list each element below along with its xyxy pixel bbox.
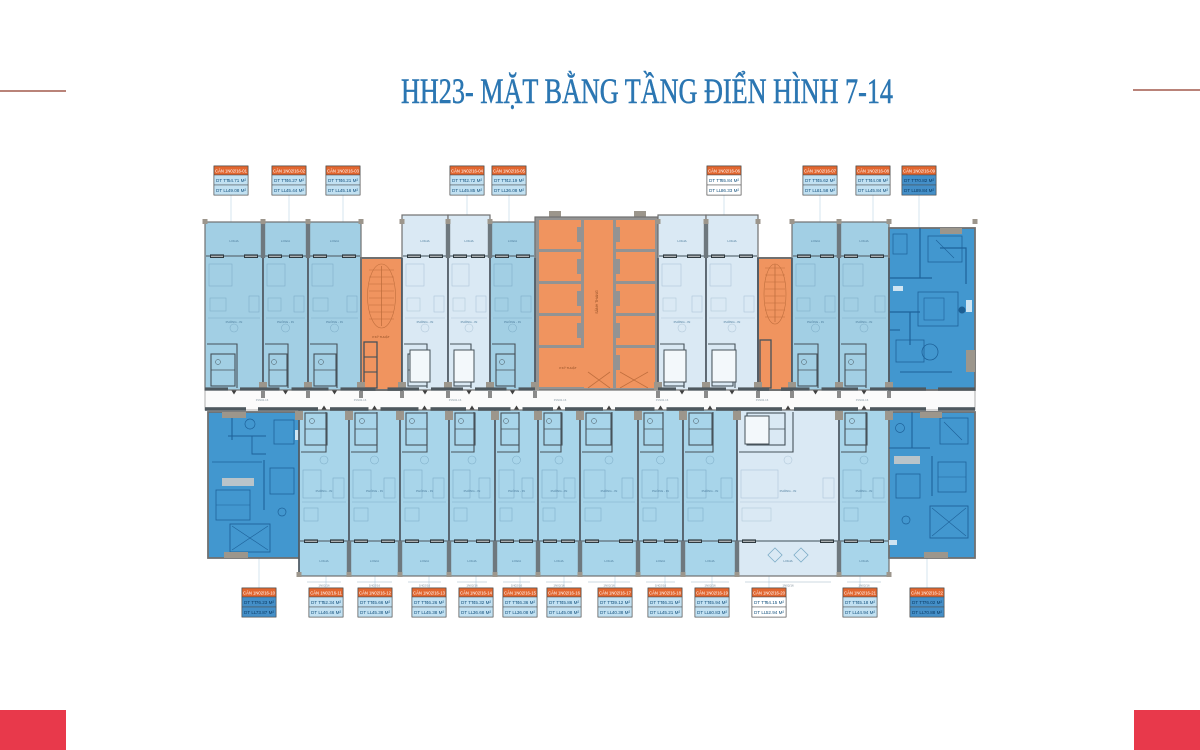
svg-text:45.86 M²: 45.86 M² [561, 600, 580, 605]
svg-text:76.23 M²: 76.23 M² [256, 600, 275, 605]
svg-text:36.08 M²: 36.08 M² [517, 610, 536, 615]
svg-text:45.18 M²: 45.18 M² [857, 600, 876, 605]
svg-text:P1N02-16: P1N02-16 [756, 398, 769, 402]
svg-text:PHÒNG - IN: PHÒNG - IN [366, 488, 383, 493]
svg-text:PHÒNG - IN: PHÒNG - IN [674, 319, 691, 324]
svg-text:1N02/16: 1N02/16 [318, 584, 330, 588]
svg-text:PHÒNG - IN: PHÒNG - IN [551, 488, 568, 493]
svg-text:70.88 M²: 70.88 M² [924, 610, 943, 615]
svg-text:LOGIA: LOGIA [859, 559, 868, 563]
svg-text:CĂN 1N02/16-05: CĂN 1N02/16-05 [493, 169, 526, 174]
svg-text:P.KỸ THUẬT: P.KỸ THUẬT [372, 334, 389, 339]
svg-text:CĂN 1N02/16-01: CĂN 1N02/16-01 [215, 169, 248, 174]
svg-text:P1N02-16: P1N02-16 [554, 398, 567, 402]
svg-text:45.08 M²: 45.08 M² [561, 610, 580, 615]
svg-text:PHÒNG - IN: PHÒNG - IN [417, 319, 434, 324]
svg-text:45.38 M²: 45.38 M² [372, 610, 391, 615]
svg-text:1N02/16: 1N02/16 [553, 584, 565, 588]
svg-text:45.16 M²: 45.16 M² [340, 188, 359, 193]
svg-text:45.38 M²: 45.38 M² [426, 610, 445, 615]
svg-text:CĂN 1N02/16-18: CĂN 1N02/16-18 [649, 591, 682, 596]
svg-text:46.31 M²: 46.31 M² [662, 600, 681, 605]
svg-text:1N02/16: 1N02/16 [369, 584, 381, 588]
svg-text:HH23- MẶT BẰNG TẦNG ĐIỂN HÌNH: HH23- MẶT BẰNG TẦNG ĐIỂN HÌNH 7-14 [401, 71, 893, 111]
svg-text:LOGIA: LOGIA [420, 239, 429, 243]
svg-text:36.68 M²: 36.68 M² [473, 610, 492, 615]
svg-text:44.08 M²: 44.08 M² [870, 178, 889, 183]
svg-text:CĂN 1N02/16-20: CĂN 1N02/16-20 [753, 591, 786, 596]
svg-text:CĂN 1N02/16-10: CĂN 1N02/16-10 [243, 591, 276, 596]
svg-text:PHÒNG - IN: PHÒNG - IN [508, 488, 525, 493]
svg-text:61.58 M²: 61.58 M² [817, 188, 836, 193]
svg-text:PHÒNG - IN: PHÒNG - IN [780, 488, 797, 493]
svg-text:CĂN 1N02/16-22: CĂN 1N02/16-22 [911, 591, 944, 596]
svg-text:PHÒNG - IN: PHÒNG - IN [226, 319, 243, 324]
svg-text:49.08 M²: 49.08 M² [228, 188, 247, 193]
svg-text:LOGIA: LOGIA [508, 239, 517, 243]
svg-text:PHÒNG - IN: PHÒNG - IN [724, 319, 741, 324]
svg-text:CĂN 1N02/16-12: CĂN 1N02/16-12 [359, 591, 392, 596]
svg-text:42.19 M²: 42.19 M² [506, 178, 525, 183]
svg-text:1N02/16: 1N02/16 [782, 584, 794, 588]
svg-text:CĂN 1N02/16-02: CĂN 1N02/16-02 [273, 169, 306, 174]
svg-text:P.KỸ THUẬT: P.KỸ THUẬT [559, 365, 576, 370]
svg-text:45.85 M²: 45.85 M² [464, 188, 483, 193]
svg-text:PHÒNG - IN: PHÒNG - IN [702, 488, 719, 493]
svg-text:CĂN 1N02/16-04: CĂN 1N02/16-04 [451, 169, 484, 174]
svg-text:42.72 M²: 42.72 M² [464, 178, 483, 183]
svg-text:LOGIA: LOGIA [229, 239, 238, 243]
svg-text:CĂN 1N02/16-13: CĂN 1N02/16-13 [413, 591, 446, 596]
svg-text:1N02/16: 1N02/16 [466, 584, 478, 588]
svg-text:LOGIA: LOGIA [656, 559, 665, 563]
svg-text:LOGIA: LOGIA [604, 559, 613, 563]
svg-text:PHÒNG - IN: PHÒNG - IN [416, 488, 433, 493]
svg-text:1N02/16: 1N02/16 [511, 584, 523, 588]
svg-text:CĂN 1N02/16-16: CĂN 1N02/16-16 [548, 591, 581, 596]
svg-text:CĂN 1N02/16-14: CĂN 1N02/16-14 [460, 591, 493, 596]
svg-text:LOGIA: LOGIA [467, 559, 476, 563]
svg-text:CĂN 1N02/16-21: CĂN 1N02/16-21 [844, 591, 877, 596]
svg-text:CĂN 1N02/16-08: CĂN 1N02/16-08 [857, 169, 890, 174]
svg-text:SẢNH THANG: SẢNH THANG [594, 290, 599, 314]
svg-text:70.82 M²: 70.82 M² [916, 178, 935, 183]
svg-text:CĂN 1N02/16-11: CĂN 1N02/16-11 [310, 591, 342, 596]
svg-text:LOGIA: LOGIA [330, 239, 339, 243]
svg-text:P1N02-16: P1N02-16 [354, 398, 367, 402]
svg-text:76.02 M²: 76.02 M² [924, 600, 943, 605]
svg-text:CĂN 1N02/16-06: CĂN 1N02/16-06 [708, 169, 741, 174]
svg-text:89.84 M²: 89.84 M² [916, 188, 935, 193]
svg-text:PHÒNG - IN: PHÒNG - IN [464, 488, 481, 493]
svg-text:1N02/16: 1N02/16 [655, 584, 667, 588]
svg-text:LOGIA: LOGIA [783, 559, 792, 563]
svg-text:40.38 M²: 40.38 M² [612, 610, 631, 615]
svg-text:1N02/16: 1N02/16 [603, 584, 615, 588]
svg-text:PHÒNG - IN: PHÒNG - IN [807, 319, 824, 324]
svg-text:46.46 M²: 46.46 M² [323, 610, 342, 615]
svg-text:46.21 M²: 46.21 M² [340, 178, 359, 183]
svg-text:1N02/16: 1N02/16 [704, 584, 716, 588]
svg-text:36.08 M²: 36.08 M² [506, 188, 525, 193]
svg-text:LOGIA: LOGIA [554, 559, 563, 563]
svg-text:CĂN 1N02/16-09: CĂN 1N02/16-09 [903, 169, 936, 174]
svg-text:LOGIA: LOGIA [420, 559, 429, 563]
svg-text:54.71 M²: 54.71 M² [228, 178, 247, 183]
svg-text:73.87 M²: 73.87 M² [256, 610, 275, 615]
svg-text:CĂN 1N02/16-03: CĂN 1N02/16-03 [327, 169, 360, 174]
svg-text:45.94 M²: 45.94 M² [709, 600, 728, 605]
svg-text:P1N02-16: P1N02-16 [256, 398, 269, 402]
svg-text:45.44 M²: 45.44 M² [286, 188, 305, 193]
svg-text:46.26 M²: 46.26 M² [426, 600, 445, 605]
svg-text:P1N02-16: P1N02-16 [449, 398, 462, 402]
svg-text:PHÒNG - IN: PHÒNG - IN [504, 319, 521, 324]
svg-text:P1N02-16: P1N02-16 [856, 398, 869, 402]
svg-text:LOGIA: LOGIA [811, 239, 820, 243]
svg-text:86.33 M²: 86.33 M² [721, 188, 740, 193]
svg-text:LOGIA: LOGIA [727, 239, 736, 243]
svg-text:PHÒNG - IN: PHÒNG - IN [326, 319, 343, 324]
svg-text:PHÒNG - IN: PHÒNG - IN [316, 488, 333, 493]
svg-text:45.21 M²: 45.21 M² [662, 610, 681, 615]
svg-text:52.34 M²: 52.34 M² [323, 600, 342, 605]
svg-text:CĂN 1N02/16-19: CĂN 1N02/16-19 [696, 591, 729, 596]
svg-text:45.84 M²: 45.84 M² [870, 188, 889, 193]
svg-text:PHÒNG - IN: PHÒNG - IN [601, 488, 618, 493]
svg-text:45.32 M²: 45.32 M² [473, 600, 492, 605]
svg-text:LOGIA: LOGIA [677, 239, 686, 243]
svg-text:65.84 M²: 65.84 M² [721, 178, 740, 183]
svg-text:1N02/16: 1N02/16 [858, 584, 870, 588]
svg-text:1N02/16: 1N02/16 [419, 584, 431, 588]
svg-text:CĂN 1N02/16-07: CĂN 1N02/16-07 [804, 169, 837, 174]
svg-text:LOGIA: LOGIA [705, 559, 714, 563]
svg-text:P1N02-16: P1N02-16 [656, 398, 669, 402]
svg-text:39.12 M²: 39.12 M² [612, 600, 631, 605]
svg-text:LOGIA: LOGIA [512, 559, 521, 563]
svg-text:CĂN 1N02/16-15: CĂN 1N02/16-15 [504, 591, 537, 596]
svg-text:60.83 M²: 60.83 M² [709, 610, 728, 615]
svg-text:52.94 M²: 52.94 M² [766, 610, 785, 615]
svg-text:LOGIA: LOGIA [319, 559, 328, 563]
svg-text:45.66 M²: 45.66 M² [372, 600, 391, 605]
svg-text:PHÒNG - IN: PHÒNG - IN [856, 319, 873, 324]
svg-text:LOGIA: LOGIA [370, 559, 379, 563]
svg-text:44.94 M²: 44.94 M² [857, 610, 876, 615]
svg-text:PHÒNG - IN: PHÒNG - IN [277, 319, 294, 324]
svg-text:PHÒNG - IN: PHÒNG - IN [461, 319, 478, 324]
svg-text:46.27 M²: 46.27 M² [286, 178, 305, 183]
svg-text:LOGIA: LOGIA [859, 239, 868, 243]
svg-text:PHÒNG - IN: PHÒNG - IN [652, 488, 669, 493]
svg-text:CĂN 1N02/16-17: CĂN 1N02/16-17 [599, 591, 632, 596]
svg-text:LOGIA: LOGIA [464, 239, 473, 243]
svg-text:46.36 M²: 46.36 M² [517, 600, 536, 605]
svg-text:64.15 M²: 64.15 M² [766, 600, 785, 605]
svg-text:45.62 M²: 45.62 M² [817, 178, 836, 183]
svg-text:LOGIA: LOGIA [281, 239, 290, 243]
svg-text:PHÒNG - IN: PHÒNG - IN [856, 488, 873, 493]
